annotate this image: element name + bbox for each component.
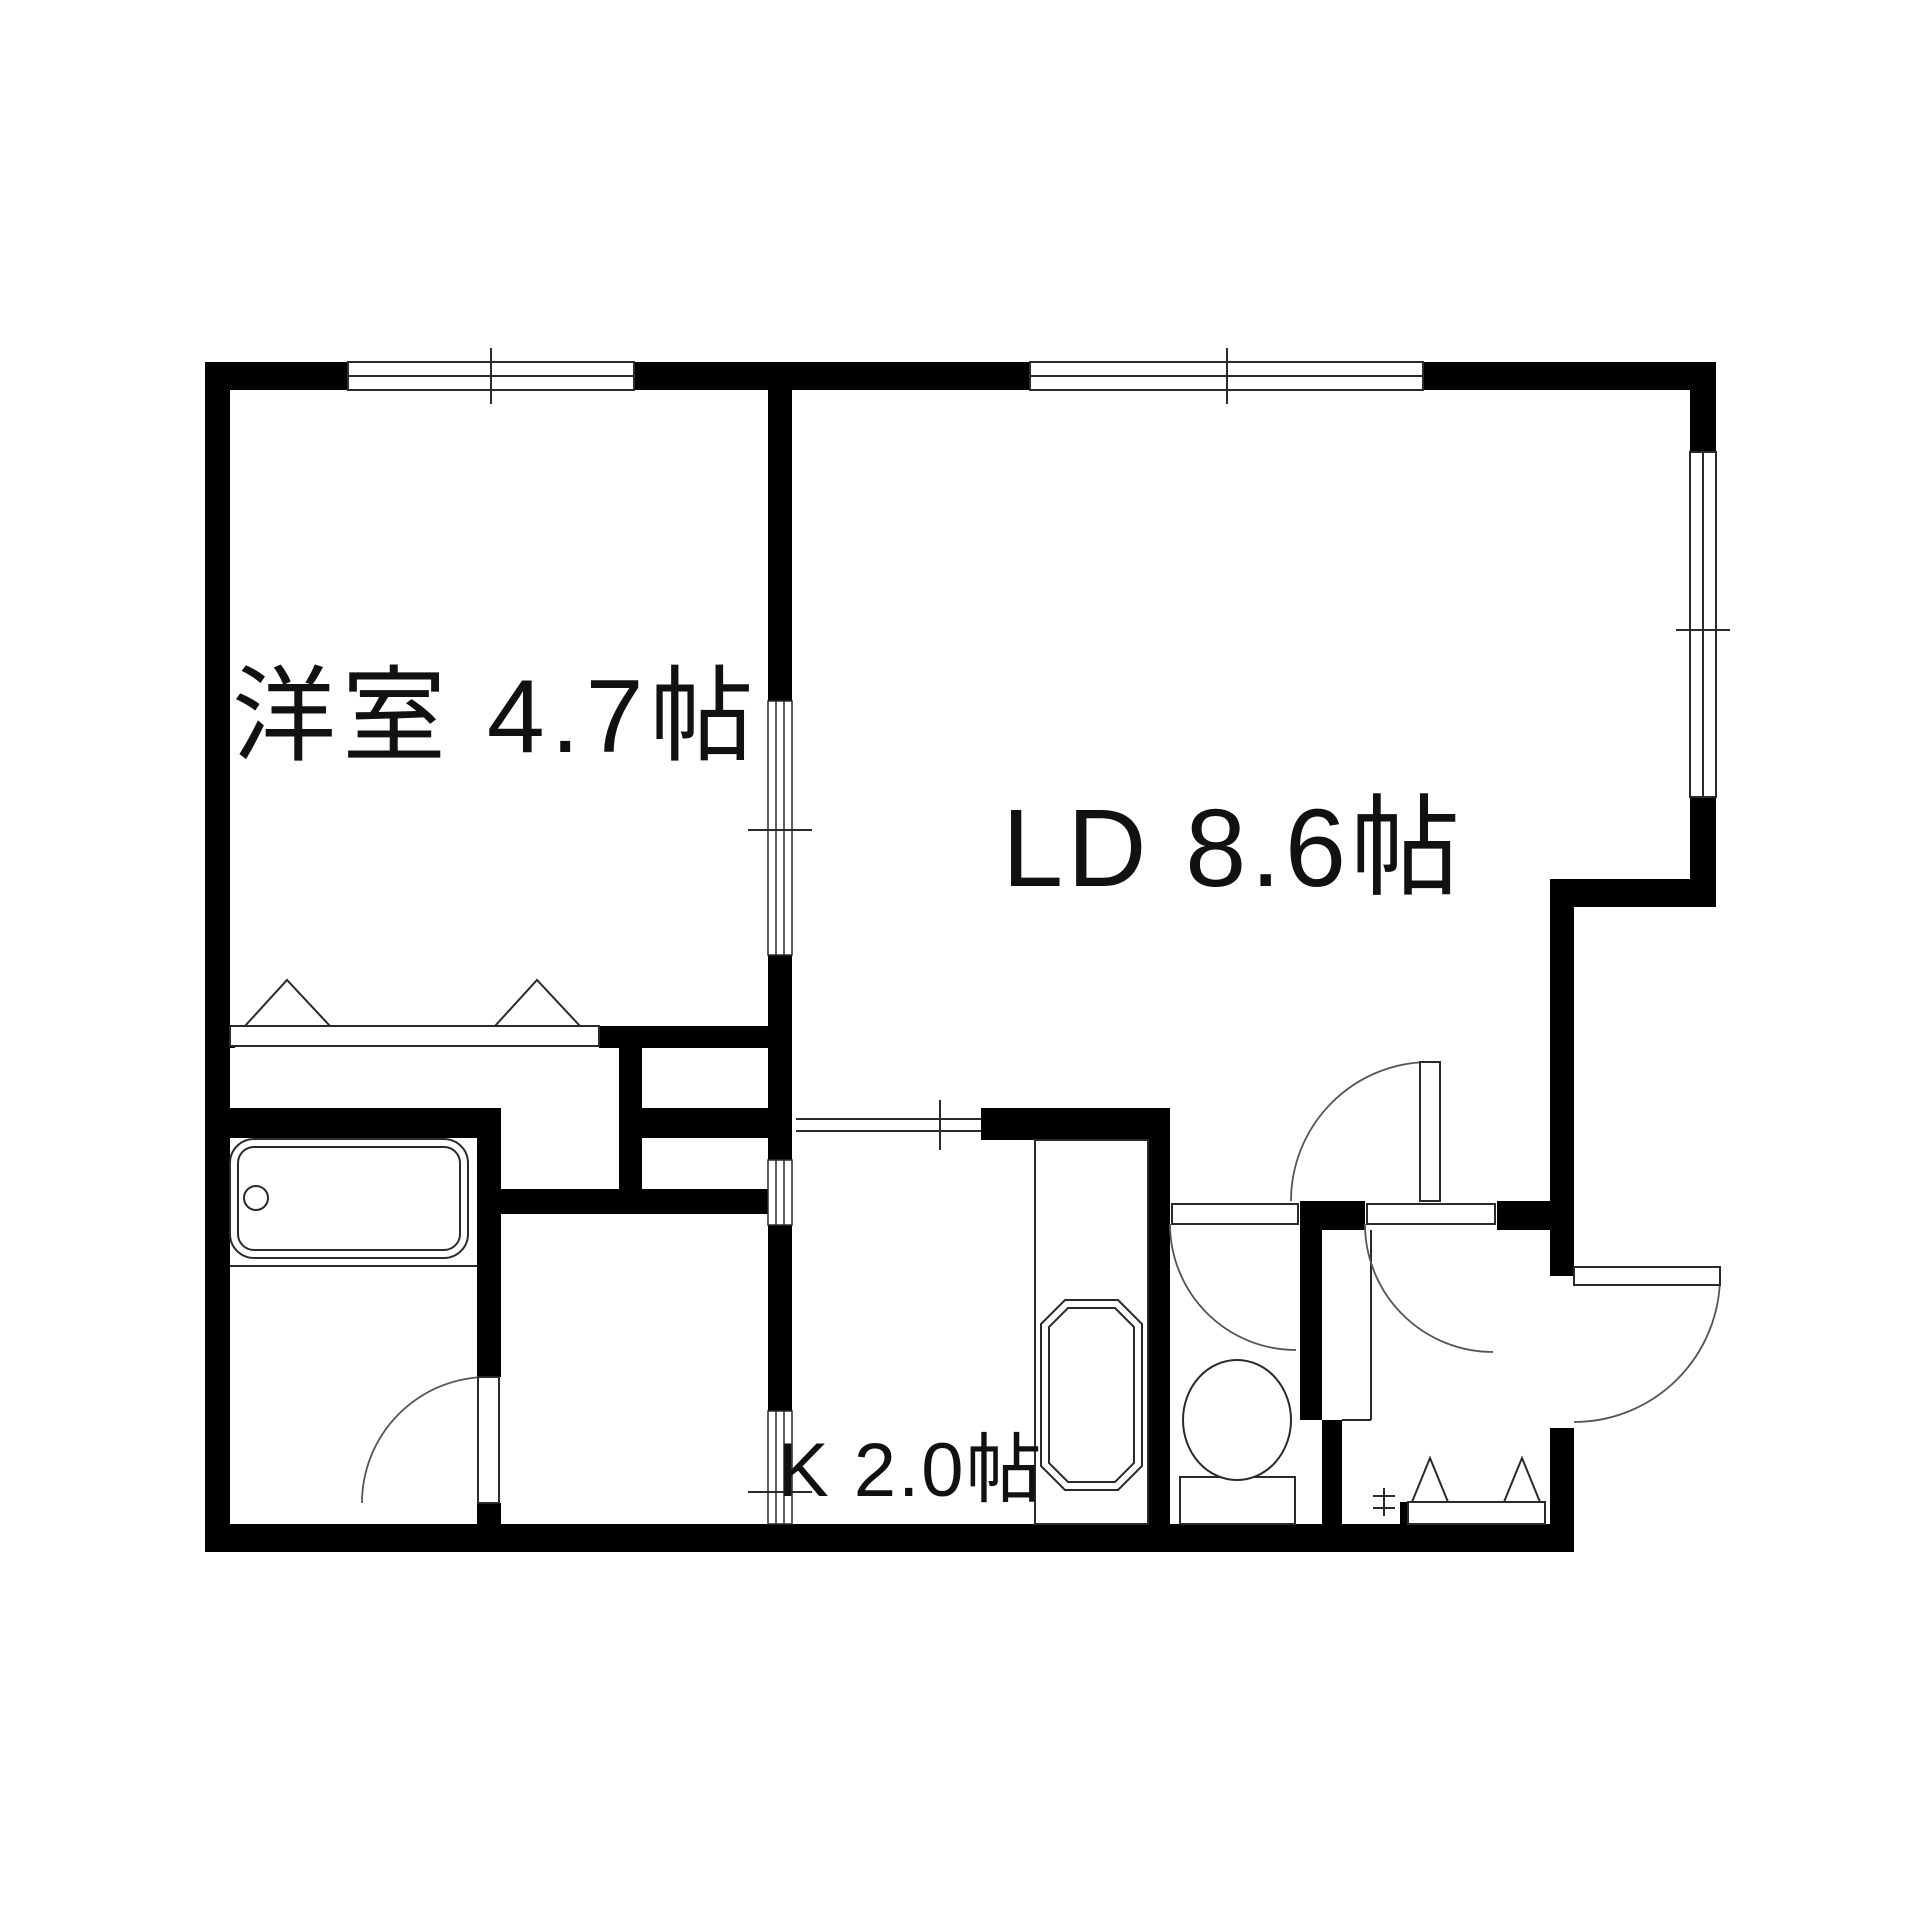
opening — [768, 1160, 792, 1225]
bath-door-leaf — [478, 1377, 499, 1503]
opening — [768, 830, 792, 955]
wall — [1300, 1201, 1322, 1420]
floor-plan-page: 洋室 4.7帖LD 8.6帖K 2.0帖 — [0, 0, 1920, 1920]
entrance-hall-door-leaf — [1367, 1204, 1495, 1224]
bathtub-faucet — [244, 1186, 268, 1210]
entry-door-leaf — [1574, 1267, 1720, 1285]
wall — [1550, 879, 1716, 907]
wall — [981, 1108, 1170, 1140]
wall — [1148, 1108, 1170, 1524]
wall — [477, 1503, 501, 1552]
toilet-door-leaf — [1172, 1204, 1298, 1224]
wall — [205, 1524, 1574, 1552]
wall — [1497, 1201, 1550, 1230]
wall — [1550, 1428, 1574, 1552]
wall — [1322, 1420, 1342, 1524]
wall — [619, 1048, 642, 1189]
entry-door-gap — [1550, 1276, 1574, 1428]
floor-plan-canvas: 洋室 4.7帖LD 8.6帖K 2.0帖 — [0, 0, 1920, 1920]
ld-corridor-door-leaf — [1420, 1062, 1440, 1201]
toilet-bowl — [1183, 1360, 1291, 1480]
wall — [501, 1189, 792, 1214]
wall — [642, 1108, 768, 1138]
wall — [205, 362, 230, 1552]
background — [0, 0, 1920, 1920]
opening — [768, 701, 792, 830]
bathtub-inner — [238, 1147, 460, 1250]
wall — [1550, 879, 1574, 1276]
wall — [599, 1026, 792, 1048]
wall — [477, 1214, 501, 1377]
closet-strip — [230, 1026, 599, 1046]
room-label-western-room: 洋室 4.7帖 — [232, 659, 759, 775]
room-label-living-dining: LD 8.6帖 — [1002, 787, 1464, 910]
wall — [768, 1225, 792, 1411]
toilet-tank — [1180, 1477, 1295, 1524]
wall — [477, 1138, 501, 1214]
wall — [768, 955, 792, 1160]
wall — [768, 362, 792, 701]
shoe-cabinet-strip — [1408, 1502, 1545, 1524]
room-label-kitchen: K 2.0帖 — [778, 1428, 1043, 1513]
wall — [205, 1108, 501, 1138]
